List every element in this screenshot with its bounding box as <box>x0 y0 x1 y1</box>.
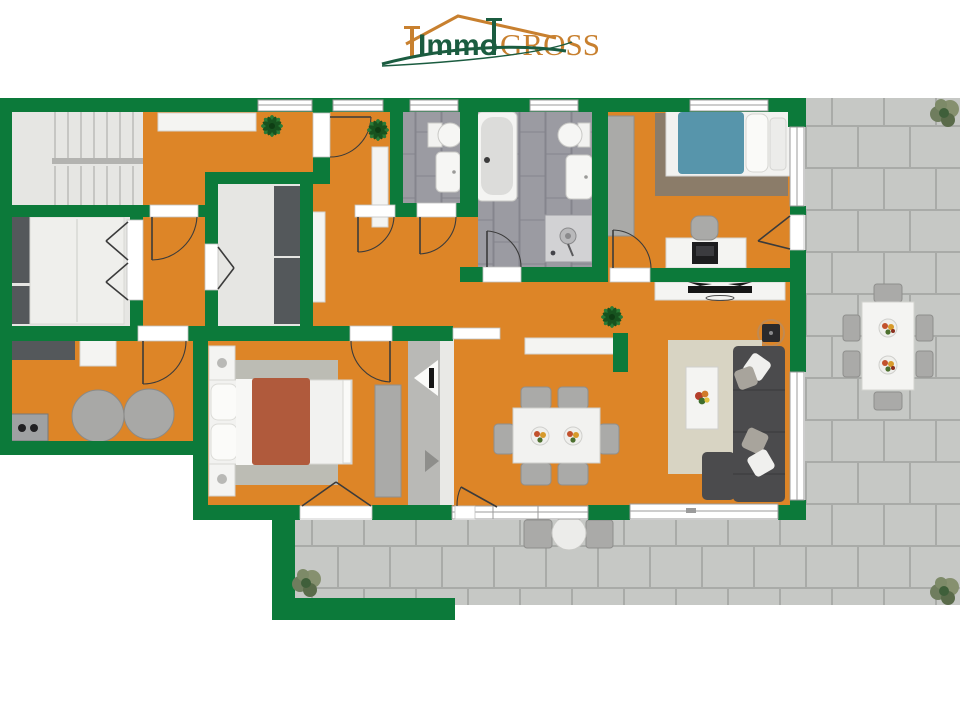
fruit-bowl <box>531 427 549 445</box>
stove <box>10 414 48 441</box>
hall-closet <box>158 113 256 131</box>
wardrobe <box>604 116 634 236</box>
storage-wardrobes <box>274 186 300 324</box>
corridor-wardrobe <box>312 212 325 302</box>
logo-text-gross: GROSS <box>500 27 600 62</box>
wc-washbasin <box>436 152 460 192</box>
fruit-bowl <box>879 356 897 374</box>
plant <box>367 119 389 141</box>
bistro-set <box>524 516 613 550</box>
terrace-pavers-bottom <box>295 520 960 605</box>
tv <box>688 286 752 293</box>
floor-plan-page: Immo GROSS <box>0 0 960 720</box>
bedroom-left-furniture <box>12 217 124 324</box>
wardrobe <box>375 385 401 497</box>
tv-sideboard <box>655 282 785 301</box>
fruit-bowl <box>879 319 897 337</box>
entry-wardrobe <box>408 335 454 505</box>
appliance-round <box>72 390 124 442</box>
dining-table <box>513 408 600 463</box>
dining-sideboard <box>525 338 618 354</box>
brand-logo: Immo GROSS <box>382 16 600 66</box>
logo-text-immo: Immo <box>418 29 498 62</box>
plant <box>261 115 283 137</box>
double-bed <box>209 378 352 465</box>
fruit-bowl <box>564 427 582 445</box>
bath-washbasin <box>566 155 592 199</box>
appliance-round <box>124 389 174 439</box>
plant <box>601 306 623 328</box>
outdoor-table <box>862 302 914 390</box>
floor-plan: Immo GROSS <box>0 0 960 720</box>
garden-wall-horizontal <box>272 598 455 620</box>
desk-chair <box>691 216 718 240</box>
bistro-table <box>552 516 586 550</box>
shower <box>545 215 592 262</box>
